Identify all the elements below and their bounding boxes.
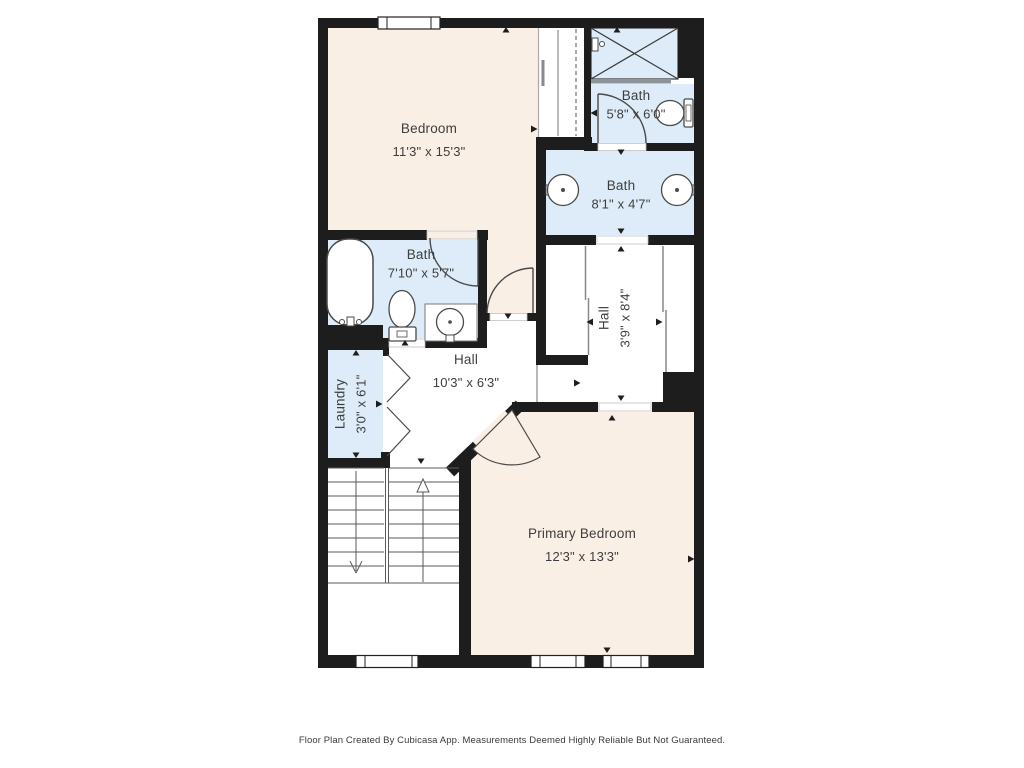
room-label-bath-left: Bath: [407, 247, 436, 262]
floor-plan-page: Bedroom 11'3" x 15'3" Bath 5'8" x 6'0" B…: [0, 0, 1024, 768]
laundry-bifold-doors: [387, 354, 410, 456]
wall-left-closet-bottom: [536, 355, 588, 365]
threshold-hall-primary: [599, 403, 651, 411]
window-top: [378, 17, 440, 29]
wall-right-of-shower: [678, 28, 694, 78]
room-dims-bath-double: 8'1" x 4'7": [591, 197, 650, 212]
sink-vanity-icon-bath-left: [425, 304, 477, 342]
shower-valve-icon: [600, 42, 605, 47]
wall-bath-left-right: [478, 230, 487, 348]
marker-right: [574, 380, 581, 387]
threshold-bedroom-bath: [427, 231, 477, 239]
marker-down: [418, 459, 425, 465]
wall-hall-right-bottom-left: [512, 402, 598, 412]
marker-left: [587, 319, 594, 326]
stair-arrow-up: [417, 479, 429, 582]
stair-arrow-down: [350, 471, 362, 573]
room-label-bath-upper: Bath: [622, 88, 651, 103]
floor-plan-canvas: Bedroom 11'3" x 15'3" Bath 5'8" x 6'0" B…: [0, 0, 1024, 768]
bifold-door-top: [387, 354, 410, 402]
wall-closet-shower: [584, 28, 591, 143]
bedroom-vestibule-floor: [487, 230, 536, 314]
wall-hall-right-bottom-right: [652, 402, 694, 412]
room-dims-bath-upper: 5'8" x 6'0": [606, 107, 665, 122]
wall-outer-top: [318, 18, 704, 28]
room-label-laundry: Laundry: [333, 379, 348, 429]
room-dims-bedroom: 11'3" x 15'3": [393, 144, 466, 159]
wall-laundry-bottom: [318, 458, 388, 468]
marker-up: [618, 246, 625, 252]
window-bottom-primary-1: [531, 656, 585, 668]
wall-bath-double-bottom-right: [648, 235, 694, 245]
room-label-hall-right: Hall: [597, 306, 612, 330]
toilet-icon-bath-left: [389, 291, 416, 342]
shower-glass-panel: [591, 79, 671, 84]
wall-vestibule-bottom-b: [527, 313, 538, 321]
room-label-bath-double: Bath: [607, 178, 636, 193]
shower-head-icon: [592, 38, 598, 51]
wall-outer-right: [694, 18, 704, 668]
room-dims-hall-right: 3'9" x 8'4": [618, 288, 633, 347]
room-dims-primary-bedroom: 12'3" x 13'3": [545, 549, 619, 564]
window-bottom-stairs: [356, 656, 418, 668]
room-dims-hall-center: 10'3" x 6'3": [433, 375, 500, 390]
threshold-bath-double: [597, 236, 648, 244]
disclaimer-text: Floor Plan Created By Cubicasa App. Meas…: [0, 735, 1024, 746]
room-label-bedroom: Bedroom: [401, 121, 457, 136]
room-label-primary-bedroom: Primary Bedroom: [528, 526, 636, 541]
wall-tub-alcove: [318, 325, 383, 350]
wall-mid-vertical: [536, 137, 546, 365]
bifold-door-bottom: [387, 407, 410, 456]
marker-down: [618, 396, 625, 402]
wall-stairs-right: [459, 455, 471, 655]
staircase: [328, 468, 459, 583]
wall-bath-upper-bottom-right: [646, 143, 694, 151]
wall-bath-left-top-a: [318, 230, 427, 240]
marker-right: [656, 319, 663, 326]
room-dims-bath-left: 7'10" x 5'7": [388, 266, 455, 281]
window-bottom-primary-2: [603, 656, 649, 668]
bathtub-icon: [327, 239, 373, 326]
wall-bath-upper-bottom-left: [584, 143, 598, 151]
threshold-bath-upper: [598, 144, 646, 151]
wall-vestibule-bottom-a: [478, 313, 490, 321]
wall-bath-left-bottom-a: [375, 338, 389, 348]
wall-bath-double-bottom-left: [536, 235, 596, 245]
room-dims-laundry: 3'0" x 6'1": [354, 374, 369, 433]
room-label-hall-center: Hall: [454, 352, 478, 367]
bedroom-closet: [539, 28, 577, 137]
